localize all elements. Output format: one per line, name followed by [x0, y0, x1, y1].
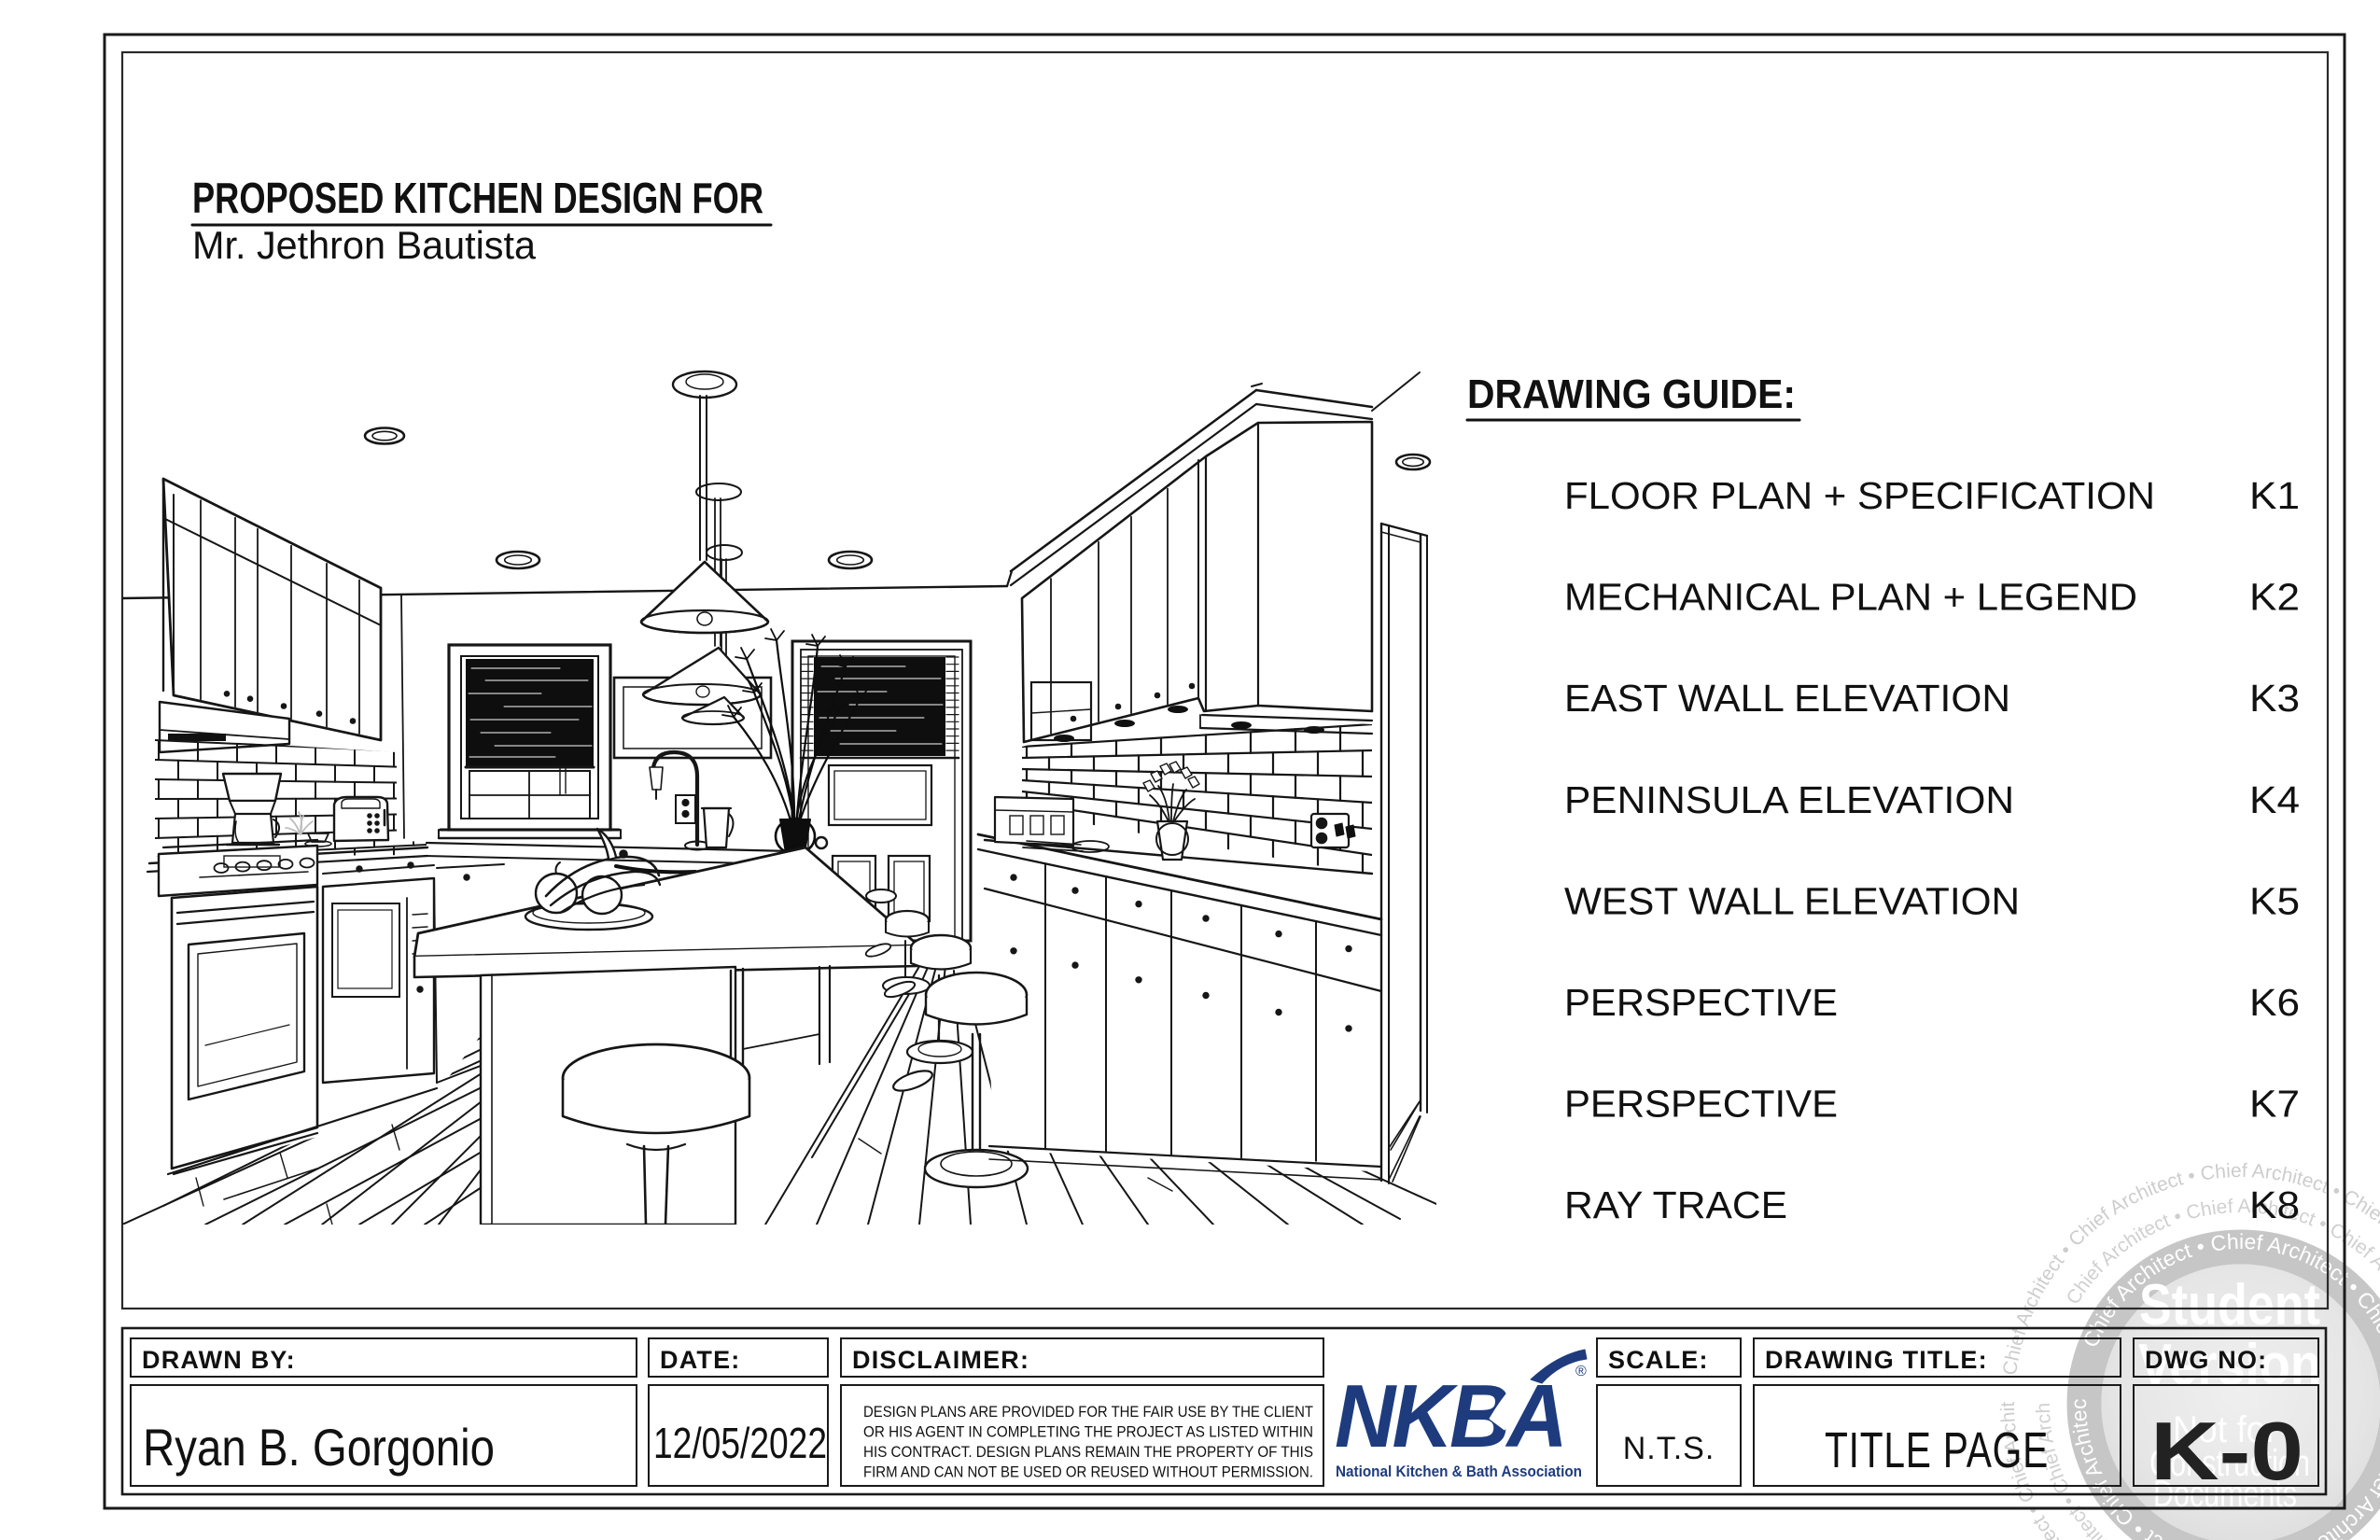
svg-text:FIRM AND CAN NOT BE USED OR RE: FIRM AND CAN NOT BE USED OR REUSED WITHO… — [863, 1463, 1313, 1481]
svg-text:PERSPECTIVE: PERSPECTIVE — [1564, 981, 1838, 1024]
svg-text:K-0: K-0 — [2150, 1405, 2303, 1497]
svg-text:DISCLAIMER:: DISCLAIMER: — [852, 1346, 1029, 1374]
svg-text:DWG NO:: DWG NO: — [2145, 1346, 2267, 1374]
svg-text:TITLE PAGE: TITLE PAGE — [1825, 1422, 2049, 1478]
svg-text:PROPOSED KITCHEN DESIGN FOR: PROPOSED KITCHEN DESIGN FOR — [192, 174, 763, 222]
svg-text:HIS CONTRACT. DESIGN PLANS REM: HIS CONTRACT. DESIGN PLANS REMAIN THE PR… — [863, 1443, 1313, 1461]
svg-text:WEST WALL ELEVATION: WEST WALL ELEVATION — [1564, 879, 2020, 922]
svg-text:DRAWN BY:: DRAWN BY: — [142, 1346, 296, 1374]
svg-text:National Kitchen & Bath Associ: National Kitchen & Bath Association — [1336, 1463, 1582, 1480]
svg-text:K3: K3 — [2249, 677, 2300, 720]
svg-text:Mr. Jethron Bautista: Mr. Jethron Bautista — [192, 223, 537, 267]
svg-text:K2: K2 — [2249, 576, 2300, 619]
svg-text:12/05/2022: 12/05/2022 — [653, 1419, 827, 1467]
svg-text:N.T.S.: N.T.S. — [1623, 1431, 1715, 1466]
svg-text:DATE:: DATE: — [660, 1346, 741, 1374]
svg-text:MECHANICAL PLAN + LEGEND: MECHANICAL PLAN + LEGEND — [1564, 576, 2137, 619]
svg-text:PENINSULA ELEVATION: PENINSULA ELEVATION — [1564, 778, 2014, 821]
svg-text:DRAWING TITLE:: DRAWING TITLE: — [1765, 1346, 1988, 1374]
svg-text:Ryan B. Gorgonio: Ryan B. Gorgonio — [143, 1418, 495, 1477]
svg-text:RAY TRACE: RAY TRACE — [1564, 1183, 1787, 1226]
svg-text:K6: K6 — [2249, 981, 2300, 1024]
svg-text:FLOOR PLAN + SPECIFICATION: FLOOR PLAN + SPECIFICATION — [1564, 474, 2155, 517]
svg-text:PERSPECTIVE: PERSPECTIVE — [1564, 1083, 1838, 1126]
svg-text:OR HIS AGENT IN COMPLETING THE: OR HIS AGENT IN COMPLETING THE PROJECT A… — [863, 1423, 1313, 1441]
svg-text:K8: K8 — [2249, 1183, 2300, 1226]
svg-text:K4: K4 — [2249, 778, 2300, 821]
svg-text:®: ® — [1575, 1364, 1587, 1379]
svg-text:K7: K7 — [2249, 1083, 2300, 1126]
svg-text:EAST WALL ELEVATION: EAST WALL ELEVATION — [1564, 677, 2010, 720]
svg-text:K1: K1 — [2249, 474, 2300, 517]
svg-text:DRAWING GUIDE:: DRAWING GUIDE: — [1467, 371, 1796, 417]
svg-text:DESIGN PLANS ARE PROVIDED FOR: DESIGN PLANS ARE PROVIDED FOR THE FAIR U… — [863, 1403, 1313, 1421]
svg-text:K5: K5 — [2249, 879, 2300, 922]
svg-text:SCALE:: SCALE: — [1608, 1346, 1709, 1374]
